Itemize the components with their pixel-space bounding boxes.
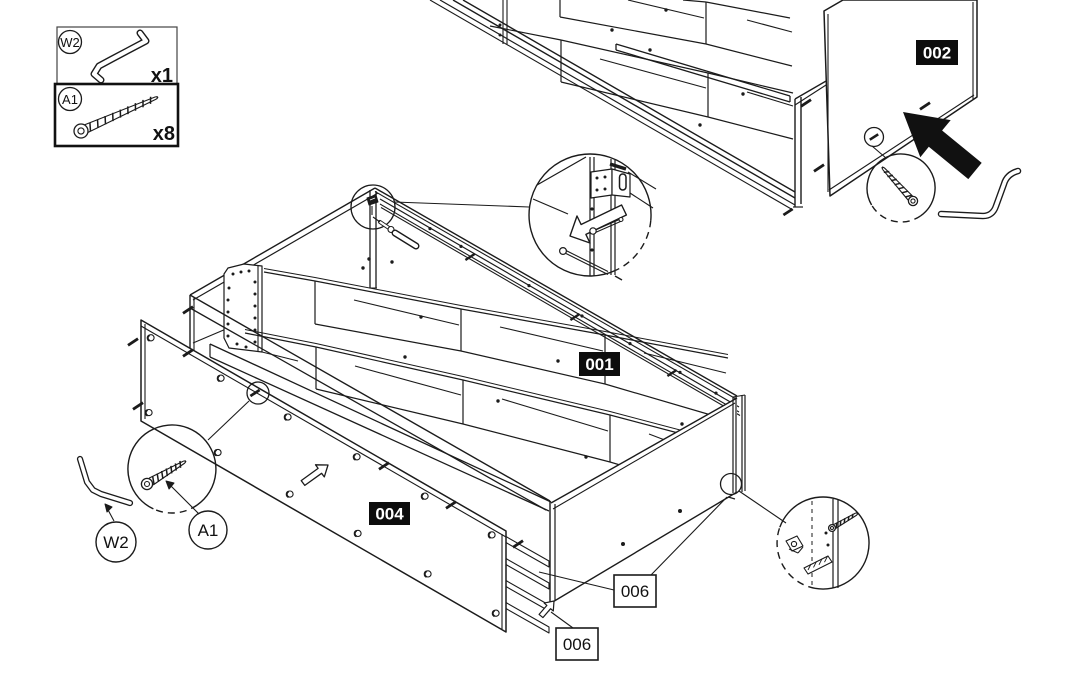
svg-text:002: 002: [923, 44, 951, 63]
svg-text:006: 006: [563, 635, 591, 654]
svg-text:001: 001: [585, 355, 613, 374]
svg-text:A1: A1: [198, 521, 219, 540]
svg-text:004: 004: [375, 505, 404, 524]
svg-text:A1: A1: [62, 92, 78, 107]
svg-text:W2: W2: [60, 35, 80, 50]
svg-text:W2: W2: [103, 533, 129, 552]
svg-text:006: 006: [621, 582, 649, 601]
svg-text:x8: x8: [153, 123, 175, 145]
